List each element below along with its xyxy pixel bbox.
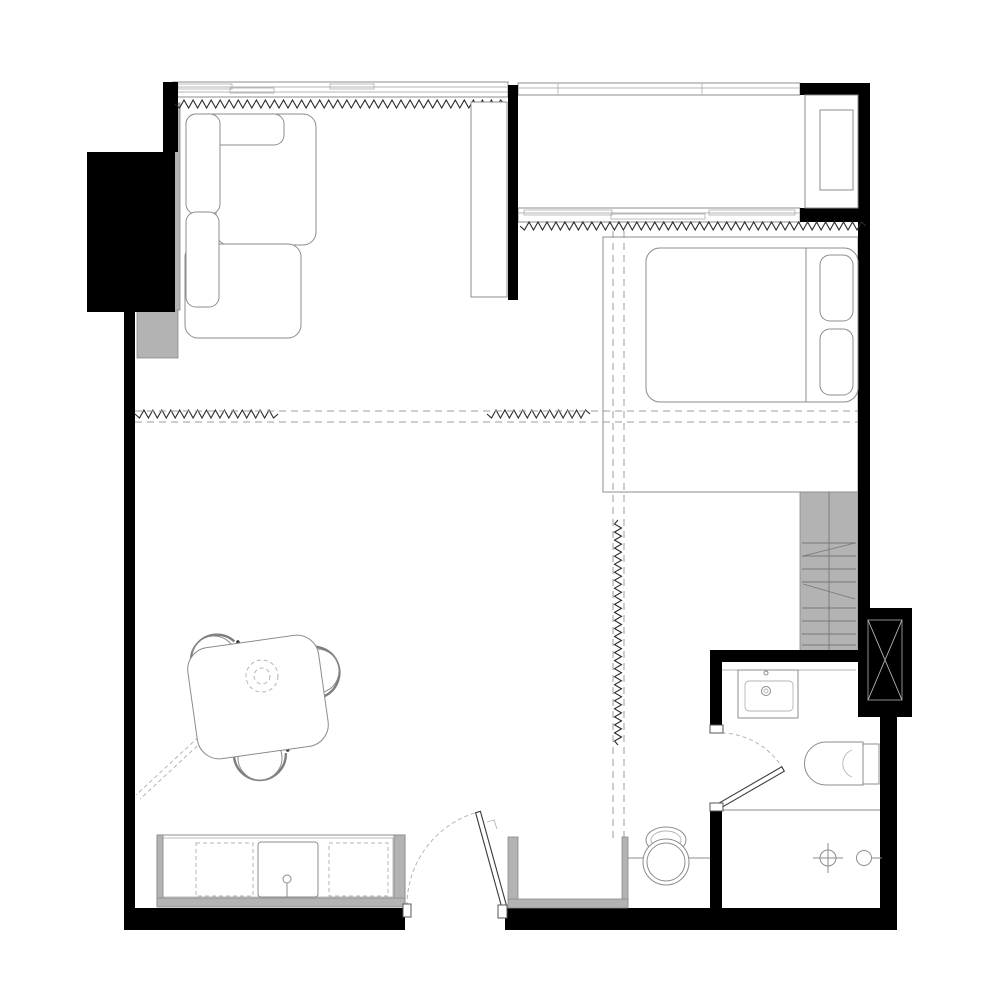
door-jamb [710,725,723,733]
wall-under-ac-niche [800,208,868,222]
pillow [820,329,853,395]
stool-seat [643,839,689,885]
wall-right [858,83,870,662]
wall-bathroom-left-lower [710,804,722,908]
niche-side-right [622,837,628,903]
sectional-sofa [185,114,316,338]
counter-end-panel-left [157,835,163,902]
door-jamb [403,904,411,917]
door-jamb [710,803,723,811]
sofa-back-left [186,114,220,214]
wall-lining-block [137,310,178,358]
wall-pier-top-left [163,82,178,152]
sofa-left-cushion [186,212,219,307]
double-bed [646,248,858,402]
wall-bathroom-right [880,715,897,930]
kitchen-counter [157,835,405,907]
tall-cabinet [471,102,507,297]
counter-end-panel-right [394,835,405,906]
counter-plinth [157,898,405,907]
wall-bottom-left [124,908,405,930]
dining-table [185,632,331,761]
floor-plan-canvas [0,0,1000,1000]
wall-bathroom-top [710,650,870,662]
wall-top-right [800,83,868,95]
wall-pier-middle [508,85,518,300]
floor-plan-drawing [0,0,1000,1000]
wall-bottom-right [505,908,897,930]
door-jamb [498,905,507,918]
wall-bathroom-left-upper [710,662,722,728]
shaft-enclosure-wall [858,608,912,717]
niche-side-left [508,837,518,903]
pillow [820,255,853,321]
wall-left [124,312,135,930]
counter-outline [157,835,405,906]
structural-column-block [87,152,175,312]
niche-back [508,899,628,908]
